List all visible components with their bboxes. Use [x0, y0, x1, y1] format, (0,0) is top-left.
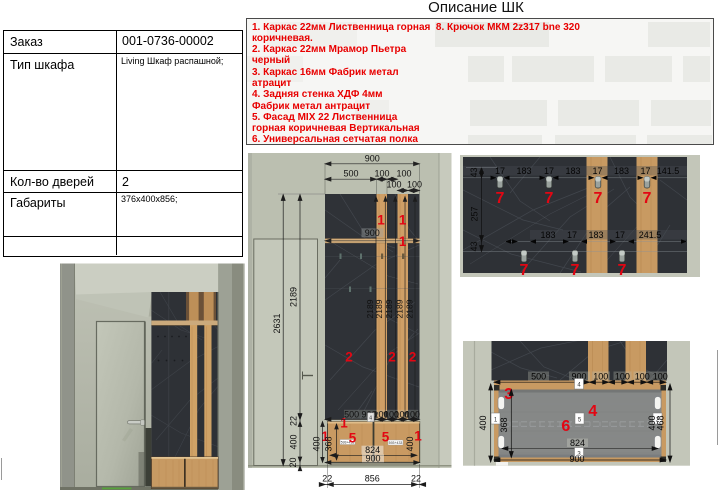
svg-text:17: 17 [567, 230, 577, 240]
svg-text:257: 257 [470, 206, 480, 221]
svg-text:2189: 2189 [395, 299, 405, 318]
svg-text:900: 900 [569, 454, 584, 464]
svg-text:183: 183 [565, 166, 580, 176]
svg-text:100: 100 [386, 180, 401, 190]
svg-text:100: 100 [615, 372, 630, 382]
svg-text:22: 22 [322, 474, 332, 484]
svg-text:2189: 2189 [374, 299, 384, 318]
svg-text:500: 500 [344, 409, 359, 419]
svg-text:7: 7 [520, 262, 529, 279]
svg-text:7: 7 [618, 262, 627, 279]
svg-text:824: 824 [570, 438, 585, 448]
svg-text:368: 368 [324, 436, 334, 451]
svg-text:1: 1 [399, 234, 407, 249]
svg-text:43: 43 [469, 167, 479, 177]
svg-text:17: 17 [544, 166, 554, 176]
svg-text:100: 100 [396, 169, 411, 179]
svg-text:856: 856 [365, 474, 380, 484]
svg-text:7: 7 [545, 190, 554, 207]
svg-text:183: 183 [540, 230, 555, 240]
svg-text:900: 900 [365, 154, 380, 164]
svg-text:100: 100 [635, 372, 650, 382]
svg-text:500: 500 [343, 169, 358, 179]
svg-text:22: 22 [289, 416, 299, 426]
svg-text:400: 400 [312, 436, 322, 451]
svg-text:593+433: 593+433 [389, 441, 403, 445]
svg-text:400: 400 [478, 415, 488, 430]
svg-text:7: 7 [571, 262, 580, 279]
svg-text:7: 7 [496, 190, 505, 207]
svg-text:183: 183 [588, 230, 603, 240]
svg-text:900: 900 [365, 228, 380, 238]
svg-text:900: 900 [365, 454, 380, 464]
svg-text:17: 17 [640, 166, 650, 176]
svg-text:17: 17 [615, 230, 625, 240]
svg-text:183: 183 [614, 166, 629, 176]
svg-text:141.5: 141.5 [657, 166, 680, 176]
svg-text:6: 6 [561, 418, 570, 435]
svg-text:500: 500 [531, 372, 546, 382]
svg-text:7: 7 [643, 190, 652, 207]
svg-text:2189: 2189 [405, 299, 415, 318]
svg-text:1: 1 [377, 213, 385, 228]
svg-text:5: 5 [382, 430, 390, 445]
svg-text:7: 7 [594, 190, 603, 207]
svg-text:4: 4 [588, 403, 597, 420]
svg-text:400: 400 [405, 436, 415, 451]
svg-text:43: 43 [469, 241, 479, 251]
svg-text:368: 368 [499, 417, 509, 432]
svg-text:2631: 2631 [272, 313, 282, 333]
svg-text:4: 4 [369, 415, 372, 421]
svg-text:5: 5 [349, 431, 357, 446]
svg-text:17: 17 [592, 166, 602, 176]
svg-text:2: 2 [409, 350, 417, 365]
svg-text:2189: 2189 [384, 299, 394, 318]
svg-text:468: 468 [656, 415, 666, 430]
svg-text:20: 20 [288, 457, 298, 467]
svg-text:2: 2 [388, 350, 396, 365]
svg-text:2: 2 [345, 350, 353, 365]
svg-text:100: 100 [407, 180, 422, 190]
svg-text:100: 100 [374, 169, 389, 179]
svg-text:1: 1 [399, 213, 407, 228]
svg-text:22: 22 [411, 474, 421, 484]
svg-text:241.5: 241.5 [639, 230, 662, 240]
svg-text:400: 400 [289, 434, 299, 449]
svg-text:1: 1 [414, 429, 422, 444]
svg-text:2189: 2189 [289, 287, 299, 307]
svg-text:183: 183 [516, 166, 531, 176]
